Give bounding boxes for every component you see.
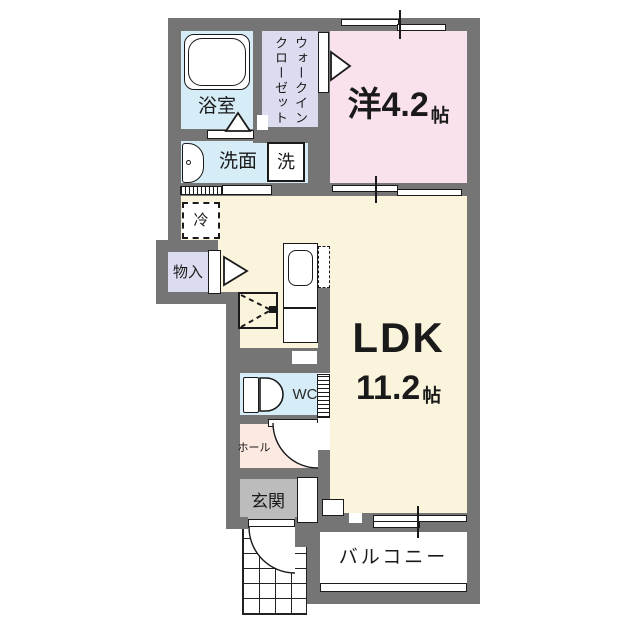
window-balcony-tick — [417, 506, 419, 538]
entrance-door-leaf — [248, 519, 295, 527]
window-balcony-pane-bottom — [373, 521, 420, 528]
pocket-door-hatch — [180, 186, 222, 195]
wall-entrance-stub-left — [226, 517, 248, 529]
bathroom-door-threshold — [207, 130, 254, 139]
western-room-label: 洋4.2帖 — [330, 82, 467, 128]
window-top-pane-left — [341, 19, 399, 26]
floor-plan: 浴室 ウォークイン クローゼット 洋4.2帖 洗面 洗 冷 物入 LDK 11.… — [0, 0, 640, 640]
balcony-label: バルコニー — [320, 545, 467, 569]
shoe-cabinet — [297, 477, 318, 523]
floor-hatch-box — [238, 292, 278, 329]
slider-westroom-ldk-left — [332, 185, 398, 192]
wall-notch-ldk-bottom — [349, 513, 362, 523]
hall-label: ホール — [236, 441, 272, 455]
wic-door-strip — [318, 32, 329, 93]
wic-label-col-right: ウォークイン — [292, 36, 308, 136]
kitchen-counter — [283, 243, 318, 343]
slider-westroom-ldk-tick — [375, 176, 377, 203]
walk-in-closet-floor — [262, 31, 318, 127]
wall-notch-wic — [257, 115, 268, 130]
storage-door-strip — [208, 250, 221, 294]
pocket-door-leaf — [222, 185, 272, 195]
ldk-label: LDK — [330, 316, 467, 360]
slider-westroom-ldk-right — [397, 189, 462, 196]
wall-storage-bottom — [156, 292, 240, 304]
wall-right — [467, 18, 480, 604]
wc-label: WC — [288, 384, 322, 404]
toilet-tank — [243, 377, 259, 413]
bathroom-label: 浴室 — [181, 95, 253, 117]
window-top-pane-right — [397, 24, 446, 31]
washer-label: 洗 — [267, 142, 305, 182]
ldk-size-label: 11.2帖 — [330, 368, 467, 408]
balcony-railing — [320, 583, 467, 592]
window-top-tick — [399, 10, 401, 39]
wall-balcony-bottom — [307, 590, 480, 604]
wall-mid-vertical — [318, 288, 330, 350]
storage-label: 物入 — [168, 252, 208, 292]
fridge-label: 冷 — [182, 202, 220, 239]
washroom-label: 洗面 — [205, 150, 271, 172]
hall-door-leaf — [268, 419, 318, 427]
wall-notch-kitchen — [292, 351, 317, 364]
ldk-floor-top — [181, 196, 467, 244]
pillar-box — [322, 499, 344, 516]
upper-cabinet-dashed — [318, 246, 330, 288]
kitchen-sink-icon — [288, 250, 313, 286]
entrance-label: 玄関 — [238, 490, 298, 512]
wic-label-col-left: クローゼット — [272, 36, 288, 136]
bathtub-icon — [184, 34, 250, 90]
hall-ldk-opening — [318, 418, 330, 450]
